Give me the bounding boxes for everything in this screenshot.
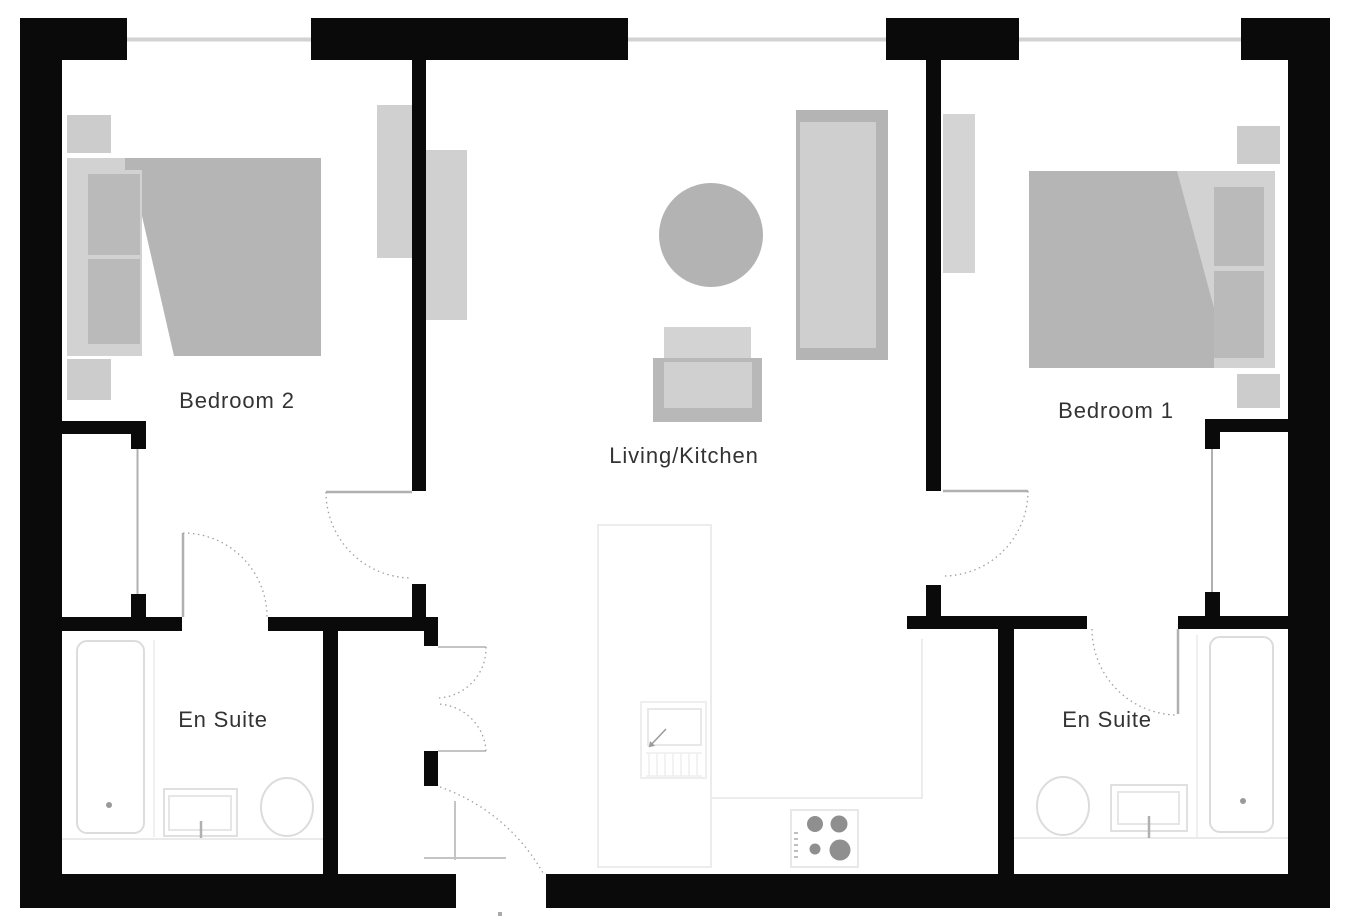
svg-text:Bedroom 1: Bedroom 1 [1058, 398, 1174, 423]
svg-text:Living/Kitchen: Living/Kitchen [609, 443, 759, 468]
svg-text:En Suite: En Suite [1062, 707, 1152, 732]
svg-text:Bedroom 2: Bedroom 2 [179, 388, 295, 413]
svg-text:En Suite: En Suite [178, 707, 268, 732]
